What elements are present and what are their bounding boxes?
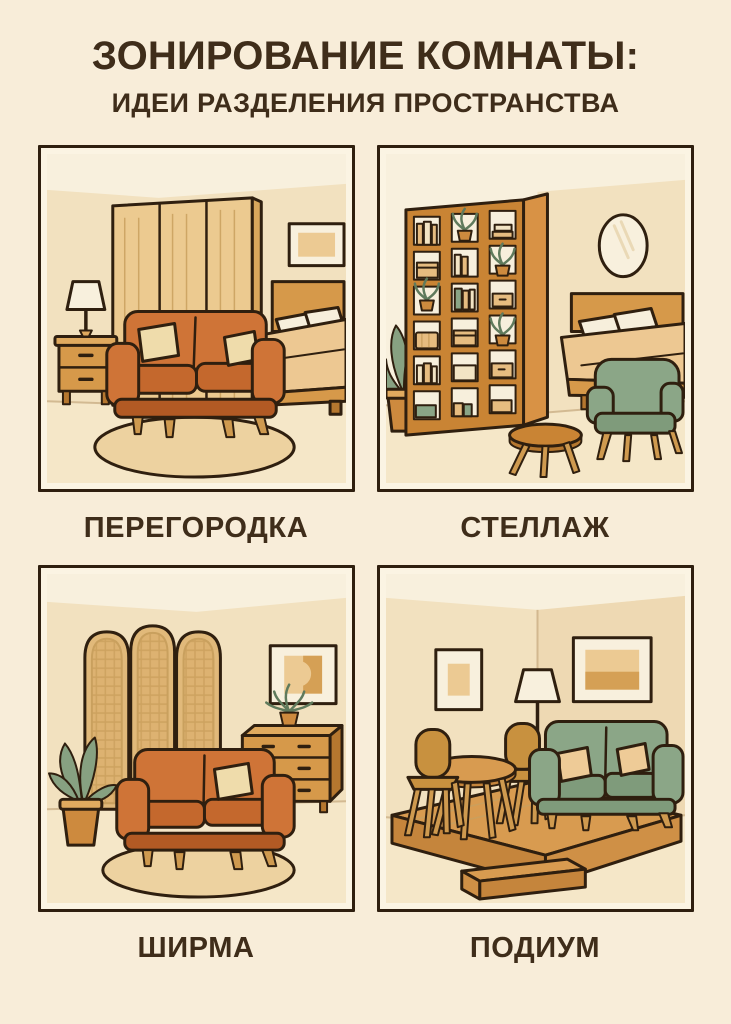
page-title: ЗОНИРОВАНИЕ КОМНАТЫ: — [10, 34, 721, 79]
panel-grid: ПЕРЕГОРОДКА — [38, 145, 694, 985]
panel-partition: ПЕРЕГОРОДКА — [38, 145, 355, 565]
panel-podium: ПОДИУМ — [377, 565, 694, 985]
panel-shelving: СТЕЛЛАЖ — [377, 145, 694, 565]
left-picture-frame — [435, 650, 481, 710]
orange-sofa — [106, 311, 283, 437]
wall-mirror-icon — [599, 215, 647, 277]
poster-header: ЗОНИРОВАНИЕ КОМНАТЫ: ИДЕИ РАЗДЕЛЕНИЯ ПРО… — [0, 0, 731, 119]
panel-label-partition: ПЕРЕГОРОДКА — [84, 492, 309, 565]
panel-screen-frame — [38, 565, 355, 912]
panel-partition-frame — [38, 145, 355, 492]
shelving-room-illustration — [386, 154, 685, 483]
picture-frame-icon — [289, 224, 344, 266]
orange-sofa — [116, 749, 293, 869]
right-picture-frame — [573, 638, 651, 702]
screen-room-illustration — [47, 574, 346, 903]
panel-screen: ШИРМА — [38, 565, 355, 985]
green-sofa — [529, 721, 682, 830]
podium-room-illustration — [386, 574, 685, 903]
panel-podium-frame — [377, 565, 694, 912]
panel-label-screen: ШИРМА — [137, 912, 254, 985]
panel-label-shelving: СТЕЛЛАЖ — [460, 492, 609, 565]
partition-room-illustration — [47, 154, 346, 483]
panel-shelving-frame — [377, 145, 694, 492]
panel-label-podium: ПОДИУМ — [470, 912, 600, 985]
page-subtitle: ИДЕИ РАЗДЕЛЕНИЯ ПРОСТРАНСТВА — [0, 88, 731, 119]
shelving-unit — [405, 194, 547, 435]
poster: ЗОНИРОВАНИЕ КОМНАТЫ: ИДЕИ РАЗДЕЛЕНИЯ ПРО… — [0, 0, 731, 1024]
